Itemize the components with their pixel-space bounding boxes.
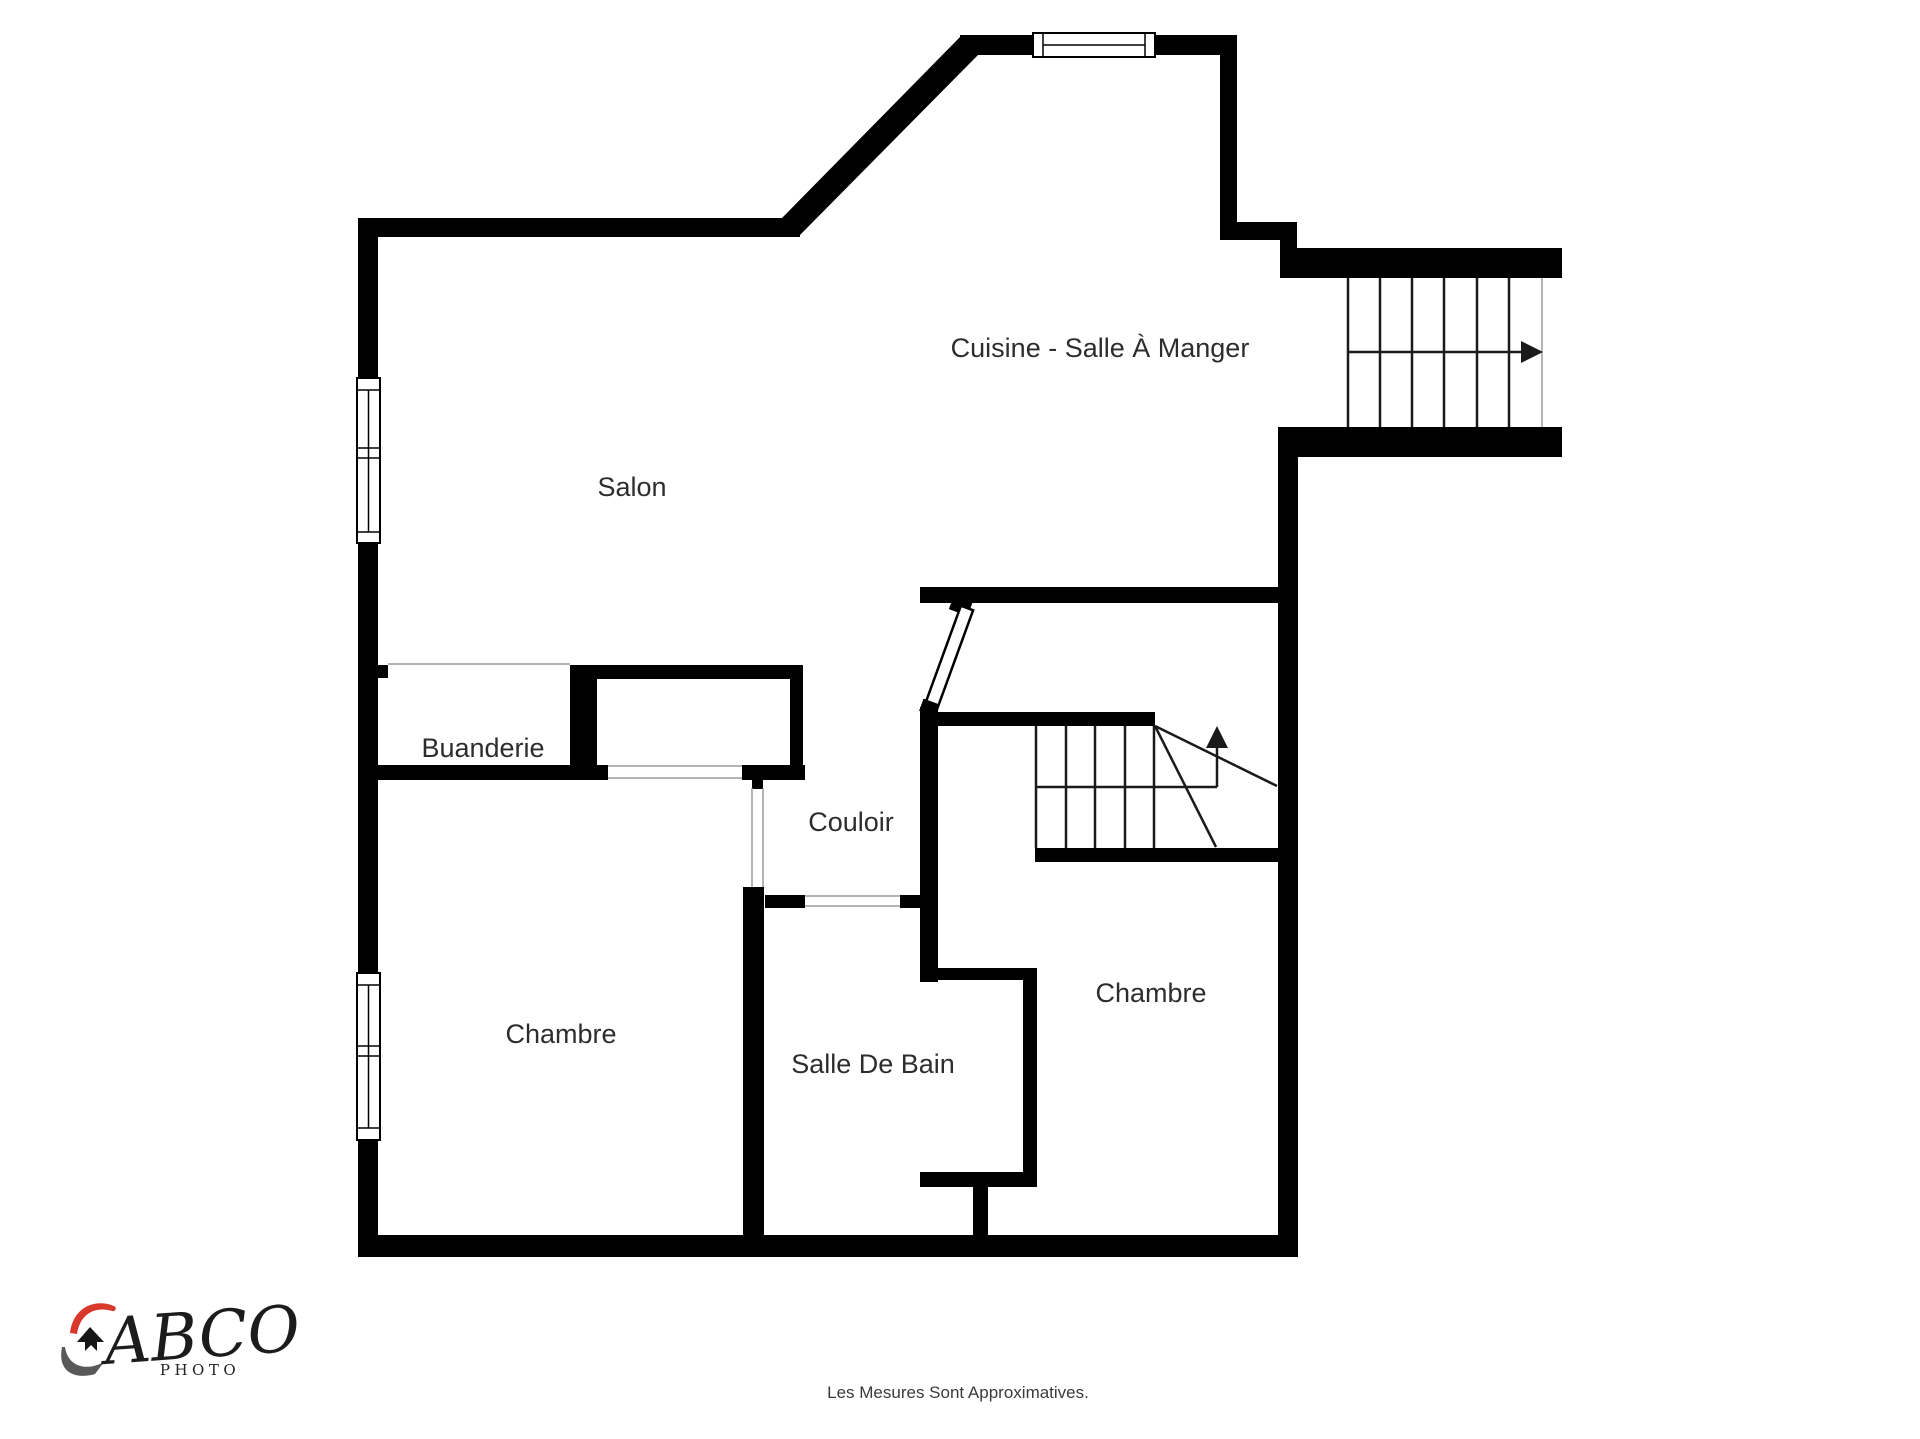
wall-bath-stub xyxy=(920,1172,1037,1187)
wall-buanderie-right xyxy=(570,665,597,780)
label-chambre-right: Chambre xyxy=(1095,978,1206,1008)
wall-kitchen-step-h xyxy=(1220,222,1297,240)
wall-chambre-sdb xyxy=(743,887,764,1237)
wall-closet-right xyxy=(790,665,803,780)
floorplan-page: Cuisine - Salle À Manger Salon Buanderie… xyxy=(0,0,1920,1439)
logo-gray-swoosh-icon xyxy=(61,1347,104,1376)
wall-right-main xyxy=(1278,457,1298,1257)
label-salle-de-bain: Salle De Bain xyxy=(791,1049,955,1079)
wall-sdb-jamb-right xyxy=(900,895,920,908)
wall-stair-top xyxy=(1280,248,1562,278)
wall-salon-top xyxy=(358,218,800,237)
interior-staircase xyxy=(1036,726,1277,848)
window-left-lower xyxy=(357,973,380,1140)
wall-diagonal xyxy=(782,35,978,237)
label-salon: Salon xyxy=(597,472,666,502)
exterior-staircase xyxy=(1348,278,1543,427)
room-labels: Cuisine - Salle À Manger Salon Buanderie… xyxy=(421,333,1249,1079)
wall-bath-connector xyxy=(973,1187,988,1237)
window-top-kitchen xyxy=(1033,33,1155,57)
label-chambre-left: Chambre xyxy=(505,1019,616,1049)
wall-couloir-right xyxy=(920,707,938,982)
wall-top-left-of-window xyxy=(960,35,1035,55)
stair-direction-arrow-right-icon xyxy=(1348,341,1543,363)
wall-stairhall-bottom xyxy=(1035,848,1280,862)
wall-left-upper xyxy=(358,218,378,378)
label-cuisine: Cuisine - Salle À Manger xyxy=(951,333,1250,363)
wall-stair-nosing xyxy=(933,712,1155,726)
wall-kitchen-right-upper xyxy=(1220,35,1237,225)
wall-couloir-step xyxy=(752,780,763,789)
abco-photo-logo: ABCO PHOTO xyxy=(61,1292,302,1380)
wall-stair-bottom xyxy=(1278,427,1562,457)
logo-sub-text: PHOTO xyxy=(160,1361,240,1379)
door-leaf xyxy=(925,606,973,710)
floorplan-drawing: Cuisine - Salle À Manger Salon Buanderie… xyxy=(0,0,1920,1439)
wall-buanderie-bottom xyxy=(378,765,608,780)
wall-sdb-jamb-left xyxy=(765,895,805,908)
label-couloir: Couloir xyxy=(808,807,894,837)
stair-direction-arrow-up-icon xyxy=(1206,726,1228,787)
wall-cuisine-bottom xyxy=(920,587,1280,603)
door-cuisine-couloir xyxy=(919,594,973,716)
wall-buanderie-stub xyxy=(378,665,388,678)
wall-bath-jog-v xyxy=(1023,980,1037,1187)
footer-disclaimer: Les Mesures Sont Approximatives. xyxy=(827,1383,1089,1402)
label-buanderie: Buanderie xyxy=(421,733,544,763)
wall-bath-jog-h xyxy=(933,968,1037,980)
wall-openings xyxy=(388,664,900,906)
window-left-upper xyxy=(357,378,380,543)
wall-left-middle xyxy=(358,543,378,973)
wall-closet-top xyxy=(570,665,803,679)
wall-bottom xyxy=(358,1235,1298,1257)
logo-house-icon xyxy=(77,1327,104,1351)
